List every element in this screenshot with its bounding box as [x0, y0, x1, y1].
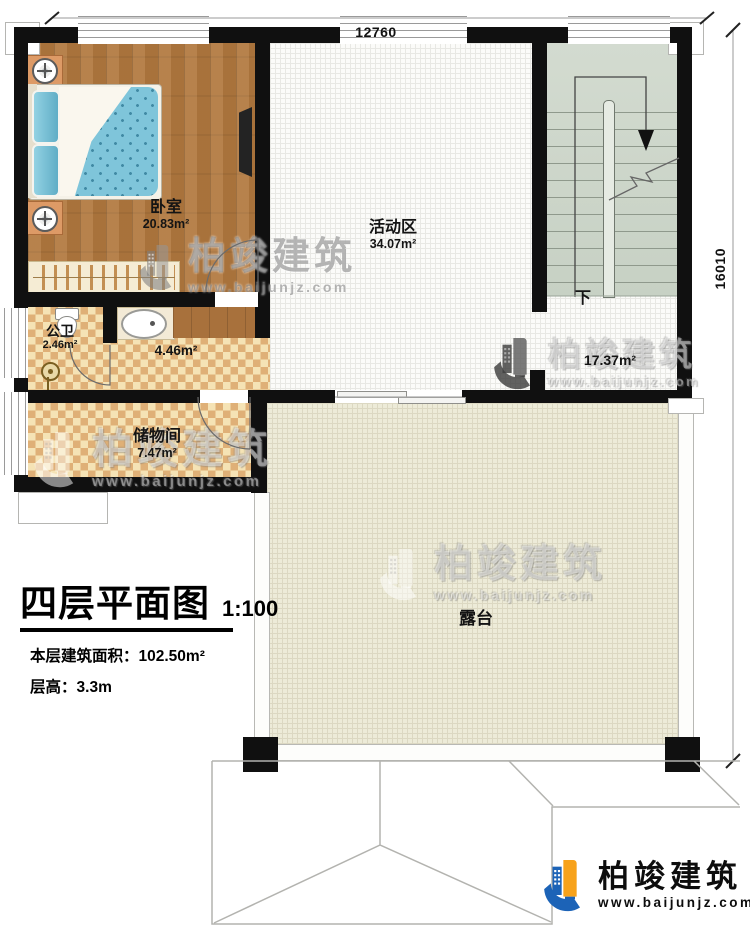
terrace-railing-bottom: [254, 744, 694, 761]
title-underline: [20, 628, 233, 632]
floor-area-line: 本层建筑面积：102.50m²: [30, 644, 278, 666]
sliding-door-leaf-1: [337, 391, 407, 398]
wall-stair-left: [532, 43, 547, 312]
cabinet-counter: [173, 307, 255, 338]
window-storage-left: [4, 392, 28, 475]
nightstand-top: [27, 55, 63, 86]
floor-plan-canvas: 12760 16010 卧室 20.83m² 活动区 34.07m² 公卫 2.…: [0, 0, 750, 928]
floor-height-line: 层高：3.3m: [30, 675, 278, 697]
window-bedroom-top: [78, 16, 209, 44]
exterior-sill-bottom-left: [18, 492, 108, 524]
wall-bedroom-bottom-b: [258, 292, 270, 307]
company-logo: 柏竣建筑 www.baijunjz.com: [540, 852, 750, 918]
shower-drain-icon: [41, 362, 60, 381]
stairs-down-label: 下: [575, 290, 591, 308]
window-bathroom-left: [4, 308, 28, 378]
terrace-label: 露台: [459, 610, 493, 629]
wall-storage-bottom: [14, 477, 267, 492]
wall-south-b: [462, 390, 692, 403]
wardrobe: [28, 261, 180, 294]
lamp-icon: [32, 58, 58, 84]
nightstand-bottom: [27, 201, 63, 235]
wall-right: [677, 27, 692, 403]
wall-south-a: [248, 390, 335, 403]
sink-drain: [150, 321, 155, 326]
activity-label: 活动区 34.07m²: [369, 219, 417, 252]
dimension-right-label: 16010: [712, 248, 728, 289]
bed-pillow-1: [32, 90, 60, 144]
sliding-door-leaf-2: [398, 397, 466, 404]
wall-divider-lower: [255, 307, 270, 338]
page-title: 四层平面图: [20, 584, 210, 625]
wall-stair-stub: [530, 370, 545, 403]
title-block: 四层平面图 1:100 本层建筑面积：102.50m² 层高：3.3m: [20, 584, 278, 697]
hallway-area-label: 4.46m²: [155, 343, 198, 360]
bathroom-label: 公卫 2.46m²: [43, 324, 78, 353]
dimension-top-label: 12760: [340, 24, 412, 40]
wall-bedroom-divider: [255, 43, 270, 292]
wall-bathroom-stub: [103, 307, 117, 343]
tv-icon: [239, 107, 252, 177]
terrace-railing-right: [678, 408, 694, 760]
terrace-column-right: [665, 737, 700, 772]
company-website: www.baijunjz.com: [598, 895, 750, 910]
corner-trim-right: [668, 398, 704, 414]
bed-pillow-2: [32, 144, 60, 197]
lamp-icon: [32, 206, 58, 232]
storage-label: 储物间 7.47m²: [133, 428, 181, 461]
terrace-column-left: [243, 737, 278, 772]
sink-icon: [121, 309, 167, 339]
stair-handrail: [603, 100, 615, 298]
window-stair-top: [568, 16, 670, 44]
wall-storage-top-a: [14, 390, 200, 403]
wardrobe-hangers: [33, 265, 175, 290]
company-name: 柏竣建筑: [598, 861, 750, 892]
terrace-floor: [267, 403, 678, 744]
company-logo-icon: [540, 852, 590, 918]
bedroom-label: 卧室 20.83m²: [143, 199, 190, 232]
wall-bedroom-bottom-a: [14, 292, 215, 307]
stairhall-area-label: 17.37m²: [584, 352, 636, 370]
scale-label: 1:100: [222, 596, 278, 622]
